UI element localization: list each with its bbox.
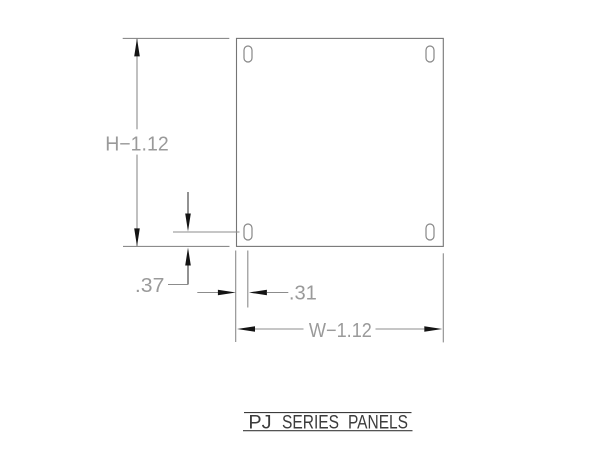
svg-text:H−1.12: H−1.12	[105, 133, 169, 155]
svg-text:.37: .37	[135, 275, 165, 297]
svg-text:.31: .31	[289, 283, 317, 305]
svg-text:W−1.12: W−1.12	[309, 320, 372, 342]
